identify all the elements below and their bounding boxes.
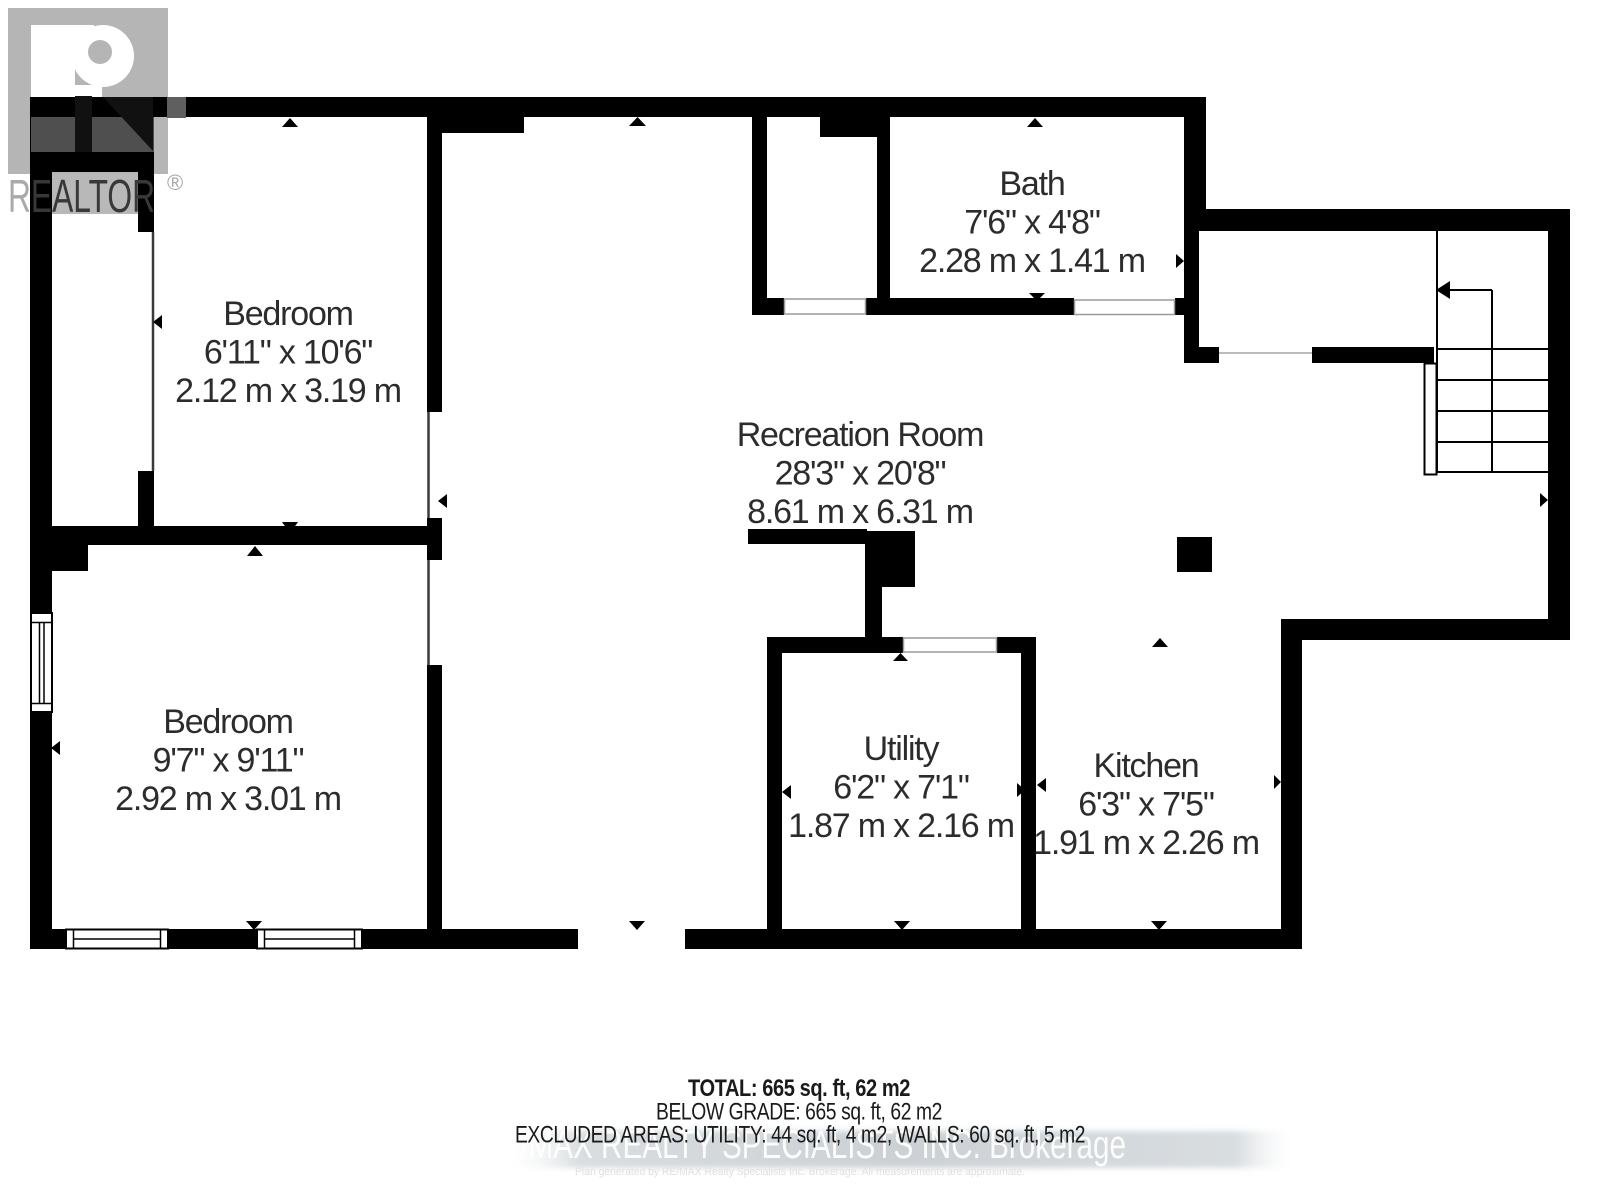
svg-text:7'6" x 4'8": 7'6" x 4'8": [964, 204, 1100, 242]
svg-text:1.87 m x 2.16 m: 1.87 m x 2.16 m: [788, 807, 1014, 845]
svg-text:6'11" x 10'6": 6'11" x 10'6": [204, 334, 372, 372]
svg-text:EXCLUDED AREAS: UTILITY: 44 sq: EXCLUDED AREAS: UTILITY: 44 sq. ft, 4 m2…: [515, 1122, 1085, 1149]
svg-text:Kitchen: Kitchen: [1093, 747, 1198, 785]
svg-text:1.91 m x 2.26 m: 1.91 m x 2.26 m: [1033, 824, 1259, 862]
svg-text:6'3" x 7'5": 6'3" x 7'5": [1078, 786, 1214, 824]
svg-text:®: ®: [167, 170, 183, 195]
svg-text:Bath: Bath: [999, 165, 1064, 203]
svg-text:28'3" x 20'8": 28'3" x 20'8": [775, 455, 946, 493]
svg-text:Utility: Utility: [864, 730, 940, 768]
svg-text:2.92 m x 3.01 m: 2.92 m x 3.01 m: [115, 780, 341, 818]
svg-text:2.12 m x 3.19 m: 2.12 m x 3.19 m: [175, 372, 401, 410]
svg-text:Plan generated by RE/MAX Realt: Plan generated by RE/MAX Realty Speciali…: [575, 1166, 1025, 1178]
svg-text:8.61 m x 6.31 m: 8.61 m x 6.31 m: [747, 493, 973, 531]
svg-text:Bedroom: Bedroom: [163, 703, 293, 741]
svg-text:6'2" x 7'1": 6'2" x 7'1": [833, 769, 969, 807]
svg-text:9'7" x 9'11": 9'7" x 9'11": [153, 742, 304, 780]
svg-text:Recreation Room: Recreation Room: [737, 416, 984, 454]
svg-text:2.28 m x 1.41 m: 2.28 m x 1.41 m: [919, 242, 1145, 280]
svg-text:Bedroom: Bedroom: [223, 295, 353, 333]
